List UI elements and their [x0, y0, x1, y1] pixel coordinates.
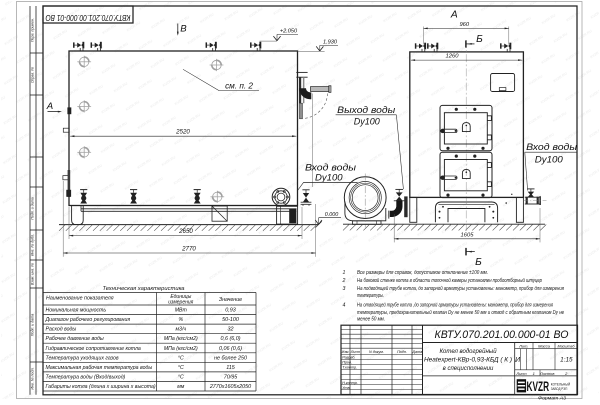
svg-text:Максимальная рабочая температу: Максимальная рабочая температура воды [46, 365, 153, 371]
svg-text:температуры.: температуры. [357, 293, 384, 299]
svg-text:температуры, предохранительный: температуры, предохранительный клапан Dу… [357, 309, 564, 316]
svg-text:0,06 (0,6): 0,06 (0,6) [219, 346, 242, 352]
svg-text:Б: Б [475, 257, 482, 268]
svg-text:Значение: Значение [219, 297, 242, 303]
svg-text:Dy100: Dy100 [315, 173, 343, 183]
svg-text:На отводящей трубе котла ,до з: На отводящей трубе котла ,до запорной ар… [357, 302, 553, 309]
svg-text:Гидравлическое сопротивление к: Гидравлическое сопротивление котла [46, 346, 141, 352]
svg-text:Справ. №: Справ. № [31, 67, 35, 83]
svg-text:ЗАВОД РЭП: ЗАВОД РЭП [551, 387, 568, 391]
svg-text:2650: 2650 [178, 228, 193, 235]
svg-text:Диапазон рабочего регулировани: Диапазон рабочего регулирования [45, 317, 131, 323]
svg-text:В: В [180, 24, 187, 35]
svg-text:На боковой стенке котла в обла: На боковой стенке котла в области топочн… [357, 277, 542, 284]
svg-text:Б: Б [476, 34, 483, 45]
svg-text:1: 1 [343, 270, 346, 276]
svg-text:КВТУ.070.201.00.000-01 ВО: КВТУ.070.201.00.000-01 ВО [45, 13, 131, 22]
svg-text:1:15: 1:15 [560, 357, 573, 364]
svg-text:2520: 2520 [175, 129, 190, 136]
svg-text:Температура воды (Вход/выход): Температура воды (Вход/выход) [46, 374, 126, 380]
svg-text:0,93: 0,93 [225, 308, 236, 314]
svg-text:Все размеры для справок, допус: Все размеры для справок, допустимое откл… [357, 270, 488, 276]
svg-text:Н.контр.: Н.контр. [342, 381, 358, 385]
svg-text:Разраб.: Разраб. [342, 356, 355, 360]
svg-text:Расход воды: Расход воды [46, 327, 77, 333]
svg-text:50-100: 50-100 [222, 317, 239, 323]
svg-text:МВт: МВт [175, 308, 188, 314]
svg-text:°С: °С [178, 355, 184, 361]
svg-text:Подп.: Подп. [397, 350, 407, 354]
svg-text:МПа (кгс/см2): МПа (кгс/см2) [164, 346, 198, 352]
svg-text:измерения: измерения [168, 300, 193, 306]
svg-text:Лист: Лист [350, 350, 361, 354]
svg-text:°С: °С [178, 365, 184, 371]
svg-text:4: 4 [343, 303, 346, 309]
svg-text:KVZR: KVZR [527, 379, 550, 395]
svg-text:Heatexpert-КВр-0,93-КБД ( К ): Heatexpert-КВр-0,93-КБД ( К ) [424, 358, 512, 364]
svg-text:КВТУ.070.201.00.000-01 ВО: КВТУ.070.201.00.000-01 ВО [435, 329, 569, 341]
svg-text:Вход воды: Вход воды [526, 142, 577, 152]
svg-text:1.930: 1.930 [323, 40, 338, 46]
svg-text:%: % [178, 317, 183, 323]
svg-text:0.000: 0.000 [325, 212, 339, 218]
svg-text:КОТЕЛЬНЫЙ: КОТЕЛЬНЫЙ [551, 382, 571, 386]
svg-text:2770х1605х2050: 2770х1605х2050 [209, 384, 251, 390]
svg-text:Рабочее давление воды: Рабочее давление воды [46, 336, 104, 342]
svg-text:мм: мм [177, 384, 185, 390]
svg-text:м3/ч: м3/ч [176, 327, 187, 333]
svg-text:Масса: Масса [538, 343, 551, 348]
svg-text:32: 32 [228, 327, 234, 333]
svg-text:Лист: Лист [515, 371, 527, 376]
svg-text:Выход воды: Выход воды [337, 105, 395, 115]
svg-text:0,6 (6,0): 0,6 (6,0) [220, 336, 240, 342]
svg-text:МПа (кгс/см2): МПа (кгс/см2) [164, 336, 198, 342]
svg-text:Лит.: Лит. [518, 343, 528, 348]
svg-text:Дата: Дата [411, 350, 422, 354]
svg-text:Пров.: Пров. [342, 361, 352, 365]
svg-text:1: 1 [533, 371, 535, 376]
svg-text:Инв. № подл.: Инв. № подл. [31, 367, 35, 389]
svg-text:Т.контр.: Т.контр. [342, 366, 357, 370]
svg-text:Вход воды: Вход воды [305, 162, 356, 172]
svg-text:А: А [450, 10, 458, 21]
svg-text:Номинальная мощность: Номинальная мощность [46, 308, 107, 314]
svg-text:Подп. и дата: Подп. и дата [31, 197, 35, 220]
svg-text:3: 3 [343, 286, 346, 292]
svg-text:Техническая характеристика: Техническая характеристика [102, 286, 185, 292]
svg-text:Котел водогрейный: Котел водогрейный [439, 348, 497, 355]
svg-text:2: 2 [342, 278, 346, 284]
svg-text:Dy100: Dy100 [535, 154, 564, 164]
svg-text:Изм.: Изм. [342, 350, 350, 354]
svg-text:На подводящей трубе котла, до: На подводящей трубе котла, до запорной а… [357, 285, 564, 292]
svg-text:Инв. № дубл.: Инв. № дубл. [31, 234, 35, 256]
svg-text:см. п. 2: см. п. 2 [225, 82, 253, 91]
svg-text:Габариты котла (длина х ширина: Габариты котла (длина х ширина х высота) [46, 384, 156, 390]
svg-text:в специсполнении: в специсполнении [443, 366, 494, 372]
svg-text:1605: 1605 [461, 232, 475, 238]
svg-text:Подп. и дата: Подп. и дата [31, 314, 35, 337]
svg-text:не более 250: не более 250 [214, 355, 247, 361]
svg-text:менее 50 мм.: менее 50 мм. [357, 317, 385, 323]
svg-text:Формат А3: Формат А3 [538, 395, 567, 400]
svg-text:Наименование показателя: Наименование показателя [46, 296, 114, 302]
svg-text:115: 115 [226, 365, 236, 371]
svg-text:1260: 1260 [446, 53, 460, 59]
svg-text:Температура уходящих газов: Температура уходящих газов [46, 355, 119, 361]
svg-text:Dy100: Dy100 [354, 117, 381, 127]
svg-text:+2.050: +2.050 [280, 29, 298, 35]
svg-text:Утв.: Утв. [342, 386, 350, 390]
svg-text:N докум.: N докум. [369, 350, 384, 354]
svg-text:2770: 2770 [181, 245, 196, 252]
svg-text:А: А [46, 101, 53, 112]
svg-text:70/95: 70/95 [224, 374, 238, 380]
svg-text:Перв. примен.: Перв. примен. [31, 18, 35, 42]
svg-text:°С: °С [178, 374, 184, 380]
svg-text:Взам. инв. №: Взам. инв. № [31, 263, 35, 285]
svg-text:Листов: Листов [539, 371, 555, 376]
svg-text:960: 960 [459, 22, 469, 28]
svg-text:Масштаб: Масштаб [558, 343, 576, 348]
